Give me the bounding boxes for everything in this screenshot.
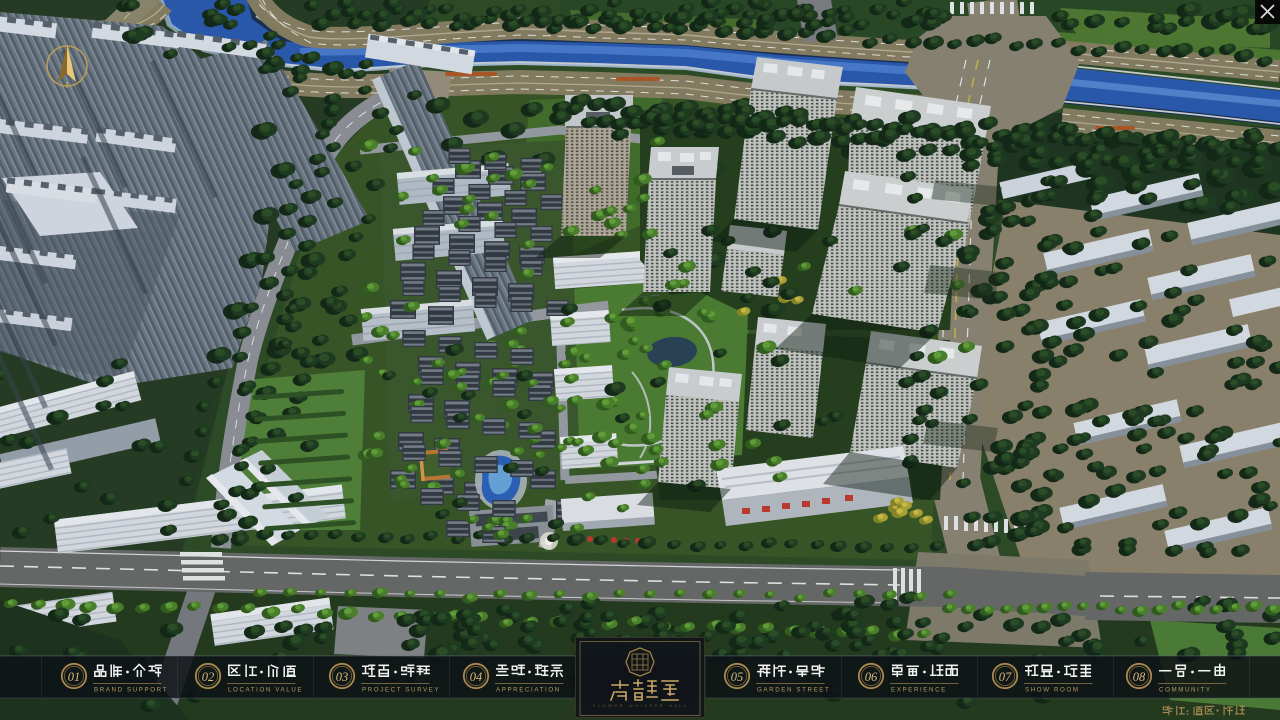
svg-text:03: 03: [336, 670, 349, 684]
svg-text:07: 07: [999, 670, 1012, 684]
svg-text:06: 06: [865, 670, 878, 684]
svg-text:02: 02: [202, 670, 215, 684]
svg-text:PROJECT SURVEY: PROJECT SURVEY: [362, 687, 440, 694]
svg-text:EXPERIENCE: EXPERIENCE: [891, 687, 947, 694]
svg-text:COMMUNITY: COMMUNITY: [1159, 687, 1212, 694]
svg-text:BRAND SUPPORT: BRAND SUPPORT: [94, 687, 168, 694]
svg-text:LOCATION VALUE: LOCATION VALUE: [228, 687, 303, 694]
svg-text:05: 05: [731, 670, 744, 684]
svg-text:01: 01: [68, 670, 81, 684]
svg-text:SHOW ROOM: SHOW ROOM: [1025, 687, 1080, 694]
svg-text:F L O W E R · W H I S P E R ·: F L O W E R · W H I S P E R · H A L L: [593, 704, 687, 708]
svg-text:04: 04: [470, 670, 483, 684]
svg-text:08: 08: [1133, 670, 1146, 684]
svg-text:APPRECIATION: APPRECIATION: [496, 687, 561, 694]
svg-text:GARDEN STREET: GARDEN STREET: [757, 687, 830, 694]
